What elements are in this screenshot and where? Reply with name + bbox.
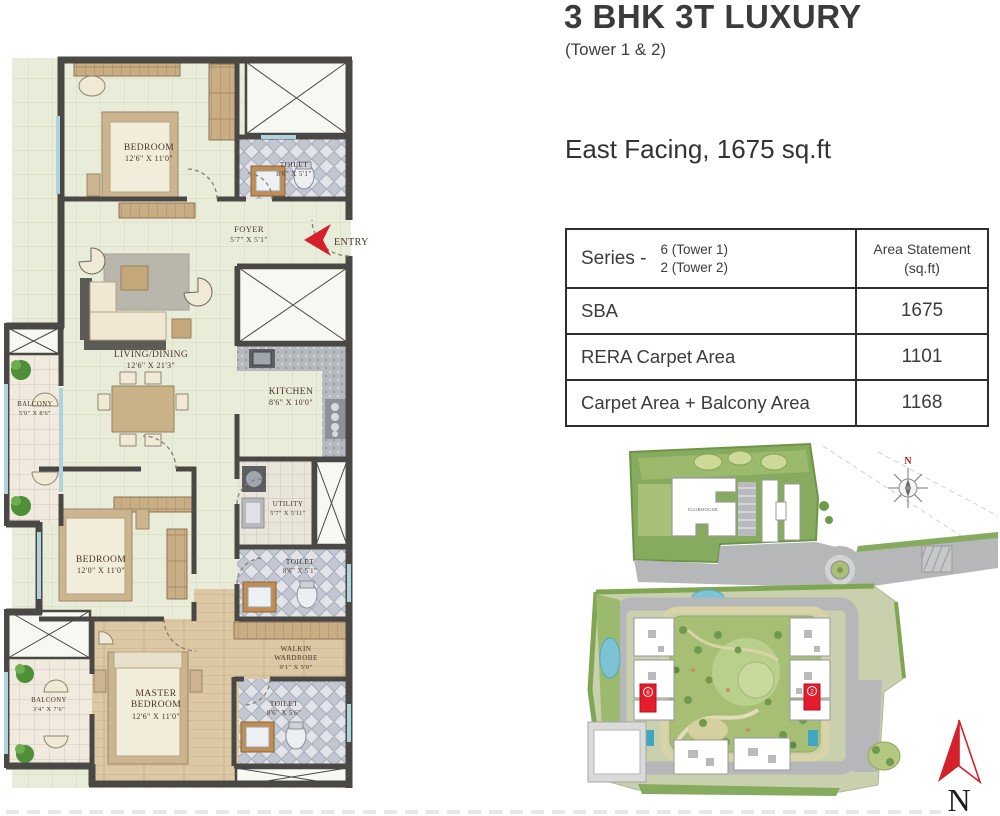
room-label: FOYER <box>234 224 264 234</box>
table-row: RERA Carpet Area 1101 <box>567 333 987 379</box>
dining-table <box>112 386 174 432</box>
coffee-table <box>121 266 148 290</box>
room-label: BALCONY <box>17 401 53 408</box>
room-dims: 12'0" X 11'0" <box>77 566 125 575</box>
table-row: Carpet Area + Balcony Area 1168 <box>567 379 987 425</box>
area-header-line2: (sq.ft) <box>904 259 940 277</box>
page-subtitle: (Tower 1 & 2) <box>565 40 666 60</box>
room-dims: 8'6" X 5'1" <box>276 170 311 178</box>
series-cell: Series - 6 (Tower 1) 2 (Tower 2) <box>567 230 857 287</box>
row-value: 1675 <box>857 289 987 333</box>
room-label: BALCONY <box>31 697 67 704</box>
series-line1: 6 (Tower 1) <box>660 242 728 257</box>
row-value: 1168 <box>857 381 987 425</box>
room-dims: 5'7" X 5'11" <box>270 510 305 517</box>
site-compass-rose: N <box>888 456 928 508</box>
north-arrow-icon <box>938 720 959 782</box>
highlighted-unit-tower1: 6 <box>640 684 656 712</box>
series-label: Series - <box>581 248 646 270</box>
row-label: SBA <box>567 289 857 333</box>
table-row: SBA 1675 <box>567 287 987 333</box>
floor-plan: ENTRY BEDROOM 12'6" X 11'0" TOILET 8'6" … <box>4 54 370 792</box>
room-label: BEDROOM <box>131 700 181 710</box>
row-value: 1101 <box>857 335 987 379</box>
room-label: BEDROOM <box>76 555 126 565</box>
southwest-building <box>588 722 646 782</box>
room-dims: 12'6" X 11'0" <box>125 154 173 163</box>
room-label: UTILITY <box>273 500 303 508</box>
row-label: RERA Carpet Area <box>567 335 857 379</box>
room-dims: 12'6" X 21'3" <box>127 361 175 370</box>
room-label: TOILET <box>286 557 315 566</box>
room-dims: 5'7" X 5'1" <box>230 235 267 244</box>
area-header-line1: Area Statement <box>873 240 970 258</box>
room-dims: 8'6" X 5'1" <box>283 568 317 575</box>
page-title: 3 BHK 3T LUXURY <box>564 0 862 35</box>
disclaimer-cutoff <box>6 810 941 814</box>
table-header-row: Series - 6 (Tower 1) 2 (Tower 2) Area St… <box>567 230 987 287</box>
north-compass: N <box>924 716 994 816</box>
row-label: Carpet Area + Balcony Area <box>567 381 857 425</box>
room-label: MASTER <box>136 689 177 699</box>
room-dims: 9'1" X 5'0" <box>280 664 313 671</box>
plant-icon <box>11 496 31 516</box>
entry-label: ENTRY <box>334 237 369 248</box>
area-statement-header-cell: Area Statement (sq.ft) <box>857 230 987 287</box>
room-label: BEDROOM <box>124 143 174 153</box>
campus: 6 2 <box>588 586 904 796</box>
series-values: 6 (Tower 1) 2 (Tower 2) <box>660 241 728 276</box>
room-dims: 5'0" X 8'6" <box>19 410 51 417</box>
wc-icon <box>286 722 306 749</box>
page: 3 BHK 3T LUXURY (Tower 1 & 2) East Facin… <box>0 0 1000 816</box>
room-dims: 3'4" X 7'6" <box>33 706 65 713</box>
room-label: TOILET <box>270 699 299 708</box>
southeast-garden <box>868 742 900 770</box>
north-letter: N <box>947 782 970 816</box>
plant-icon <box>11 360 31 380</box>
room-label: KITCHEN <box>269 387 314 397</box>
series-line2: 2 (Tower 2) <box>660 260 728 275</box>
room-dims: 8'6" X 5'6" <box>267 710 301 717</box>
room-dims: 8'6" X 10'0" <box>269 398 313 407</box>
room-label: WALKIN <box>281 645 312 653</box>
highlighted-unit-tower2: 2 <box>804 684 820 710</box>
wc-icon <box>297 581 317 608</box>
wardrobe1 <box>209 64 235 140</box>
room-label: TOILET <box>280 160 309 169</box>
area-statement-table: Series - 6 (Tower 1) 2 (Tower 2) Area St… <box>565 228 989 427</box>
room-dims: 12'6" X 11'0" <box>132 712 180 721</box>
hob-icon <box>325 399 346 439</box>
facing-area-text: East Facing, 1675 sq.ft <box>565 134 831 165</box>
clubhouse-label: CLUBHOUSE <box>688 507 718 512</box>
site-north-label: N <box>904 456 912 467</box>
room-label: LIVING/DINING <box>114 350 188 360</box>
room-label: WARDROBE <box>274 654 318 662</box>
